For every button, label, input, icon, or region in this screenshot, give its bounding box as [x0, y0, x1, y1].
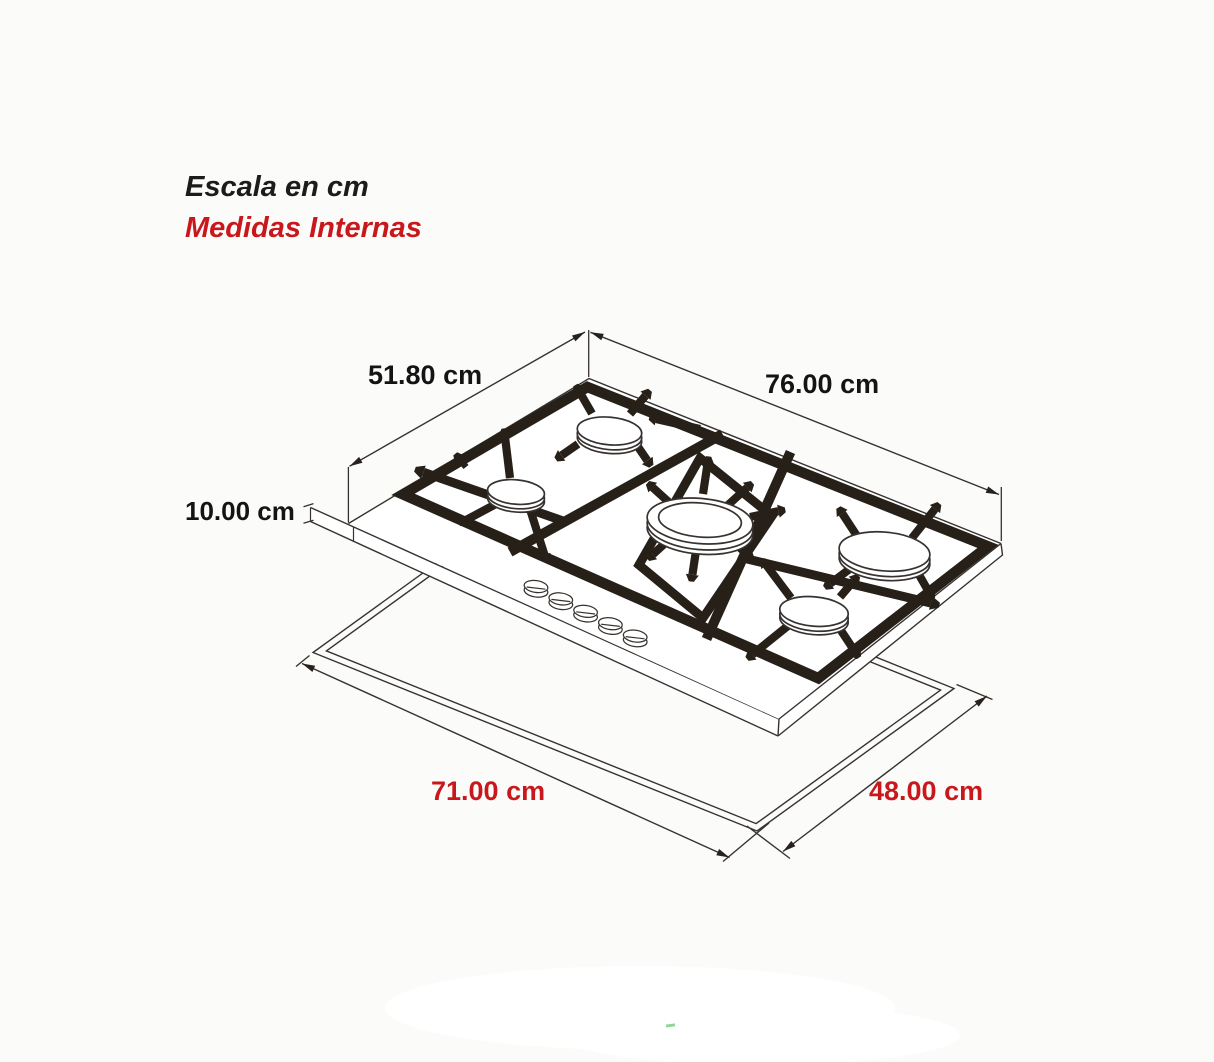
svg-text:Medidas Internas: Medidas Internas: [185, 212, 422, 244]
svg-text:10.00 cm: 10.00 cm: [185, 496, 295, 526]
svg-text:Escala en cm: Escala en cm: [185, 171, 369, 203]
svg-text:51.80 cm: 51.80 cm: [368, 360, 482, 390]
svg-text:76.00 cm: 76.00 cm: [765, 369, 879, 399]
svg-text:48.00 cm: 48.00 cm: [869, 776, 983, 806]
svg-text:71.00 cm: 71.00 cm: [431, 776, 545, 806]
